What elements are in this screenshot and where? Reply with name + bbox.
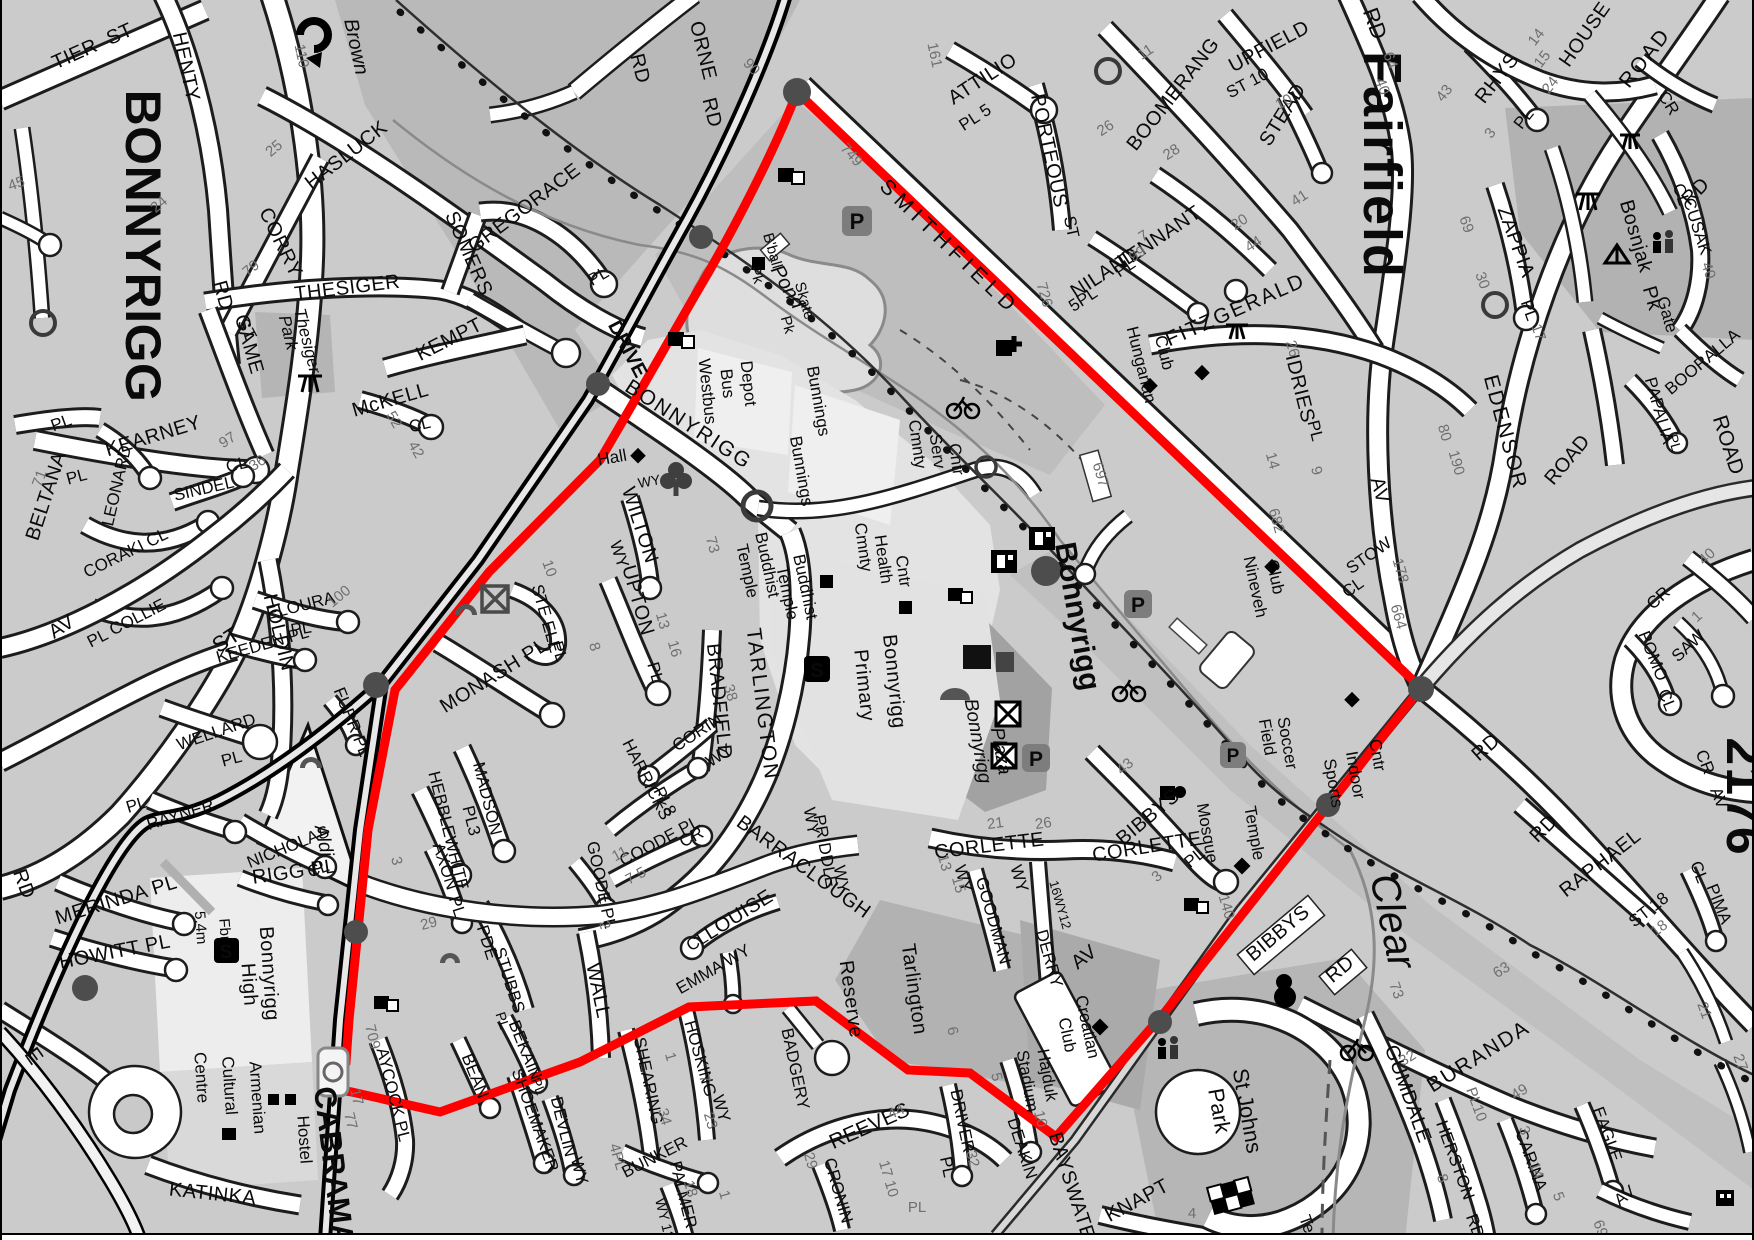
svg-text:21: 21 (986, 814, 1005, 833)
svg-text:5.4m: 5.4m (191, 910, 210, 944)
svg-text:High: High (237, 962, 262, 1007)
svg-text:BONNYRIGG: BONNYRIGG (115, 90, 171, 403)
svg-text:26: 26 (1034, 814, 1053, 833)
svg-text:Bus: Bus (716, 368, 738, 399)
svg-text:4: 4 (1188, 1205, 1196, 1222)
svg-text:S: S (810, 660, 823, 682)
svg-text:Hostel: Hostel (293, 1115, 315, 1164)
svg-text:Centre: Centre (190, 1052, 213, 1104)
svg-text:S: S (220, 942, 233, 963)
svg-text:P: P (1131, 594, 1145, 617)
svg-text:Fbr: Fbr (215, 918, 234, 942)
svg-text:P: P (850, 209, 865, 234)
svg-text:P: P (1227, 746, 1240, 767)
svg-text:P: P (1029, 748, 1043, 771)
svg-text:PL: PL (908, 1199, 926, 1216)
